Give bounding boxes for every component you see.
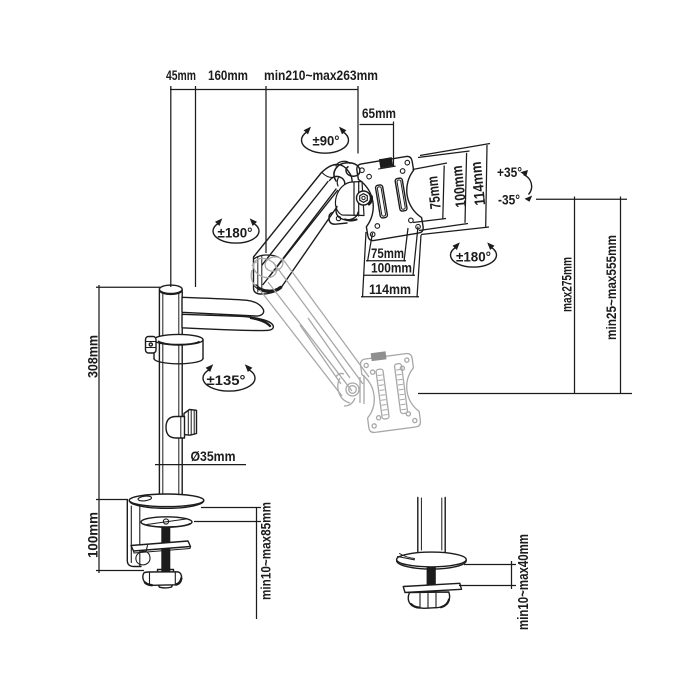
- svg-text:100mm: 100mm: [371, 260, 412, 276]
- svg-text:65mm: 65mm: [362, 105, 396, 121]
- svg-text:±90°: ±90°: [313, 133, 340, 149]
- svg-text:114mm: 114mm: [369, 281, 411, 297]
- svg-text:±135°: ±135°: [207, 372, 246, 388]
- svg-text:Ø35mm: Ø35mm: [191, 448, 236, 464]
- svg-text:min25~max555mm: min25~max555mm: [603, 235, 619, 340]
- svg-text:max275mm: max275mm: [559, 257, 575, 312]
- svg-text:+35°: +35°: [497, 164, 522, 180]
- svg-text:min10~max40mm: min10~max40mm: [515, 534, 532, 630]
- svg-text:min10~max85mm: min10~max85mm: [258, 502, 274, 600]
- svg-text:100mm: 100mm: [449, 165, 470, 209]
- svg-text:308mm: 308mm: [85, 335, 101, 378]
- svg-text:±180°: ±180°: [456, 249, 491, 265]
- svg-text:±180°: ±180°: [218, 225, 253, 241]
- svg-text:75mm: 75mm: [424, 175, 444, 210]
- svg-text:min210~max263mm: min210~max263mm: [264, 67, 378, 83]
- svg-text:45mm: 45mm: [166, 67, 196, 83]
- svg-text:100mm: 100mm: [85, 512, 101, 558]
- svg-text:160mm: 160mm: [208, 67, 248, 83]
- svg-text:-35°: -35°: [498, 192, 520, 208]
